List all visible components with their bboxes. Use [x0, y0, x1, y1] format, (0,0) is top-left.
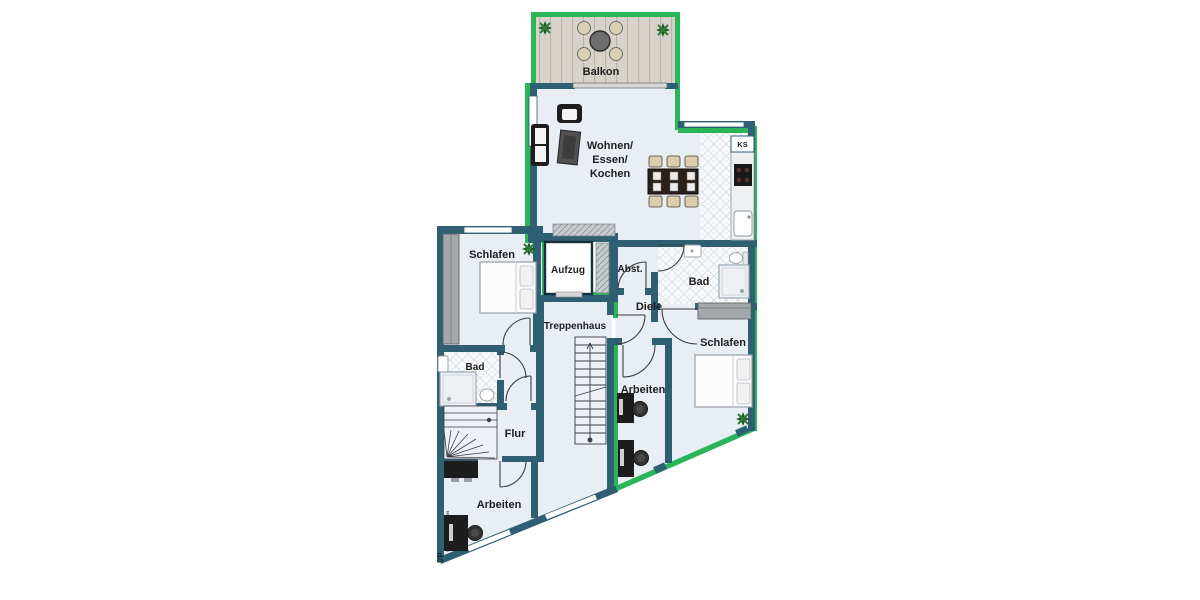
shower-icon — [440, 372, 476, 406]
room-label-wohnen-1: Wohnen/ — [587, 140, 633, 152]
room-label-bad-top: Bad — [689, 276, 710, 288]
room-label-balkon: Balkon — [583, 66, 620, 78]
plant-icon — [736, 412, 750, 426]
plant-icon — [522, 242, 536, 256]
wardrobe-icon — [698, 303, 751, 319]
room-label-aufzug: Aufzug — [551, 265, 585, 276]
patio-chair-icon — [578, 22, 591, 35]
room-label-flur: Flur — [505, 428, 526, 440]
toilet-icon — [480, 389, 494, 401]
stove-icon — [734, 164, 752, 186]
dining-chair-icon — [649, 196, 662, 207]
kitchen-fixtures — [731, 136, 754, 240]
window-bedroom-left-top — [464, 227, 512, 233]
watermark-text: VON POLL IMMOBILIEN — [446, 511, 450, 552]
room-label-wohnen-3: Kochen — [590, 168, 631, 180]
dining-chair-icon — [685, 156, 698, 167]
dining-chair-icon — [649, 156, 662, 167]
winder-stair — [444, 406, 497, 459]
dining-chair-icon — [667, 196, 680, 207]
room-label-schlafen-right: Schlafen — [700, 337, 746, 349]
patio-chair-icon — [610, 22, 623, 35]
room-label-arbeiten-bl: Arbeiten — [477, 499, 522, 511]
watermark-initials: VP — [437, 552, 446, 563]
office-chair-icon — [634, 451, 649, 466]
room-label-wohnen-2: Essen/ — [592, 154, 627, 166]
patio-chair-icon — [578, 48, 591, 61]
plant-icon — [538, 21, 552, 35]
dining-chair-icon — [685, 196, 698, 207]
sink-icon — [734, 211, 752, 236]
toilet-icon — [730, 253, 743, 264]
stairwell-straight-stair — [575, 337, 606, 444]
round-table-icon — [590, 31, 610, 51]
window-kitchen-top — [684, 122, 744, 127]
floor-plan-canvas: Balkon Wohnen/ Essen/ Kochen KS Schlafen… — [0, 0, 1200, 600]
dining-chair-icon — [667, 156, 680, 167]
room-label-schlafen-left: Schlafen — [469, 249, 515, 261]
room-label-ks: KS — [737, 140, 747, 149]
desk-icon — [444, 461, 478, 478]
patio-chair-icon — [610, 48, 623, 61]
room-label-treppenhaus: Treppenhaus — [544, 321, 607, 332]
office-chair-icon — [633, 402, 648, 417]
balcony-slider-door — [573, 83, 667, 88]
shower-icon — [719, 265, 749, 298]
plant-icon — [656, 23, 670, 37]
room-label-arbeiten-mid: Arbeiten — [621, 384, 666, 396]
floor-plan-page: Balkon Wohnen/ Essen/ Kochen KS Schlafen… — [0, 0, 1200, 600]
tv-icon — [557, 130, 580, 165]
washbasin-icon — [438, 356, 448, 372]
room-label-bad-left: Bad — [466, 362, 485, 373]
room-label-abst: Abst. — [618, 264, 643, 275]
room-label-diele: Diele — [636, 301, 662, 313]
office-chair-icon — [468, 526, 483, 541]
